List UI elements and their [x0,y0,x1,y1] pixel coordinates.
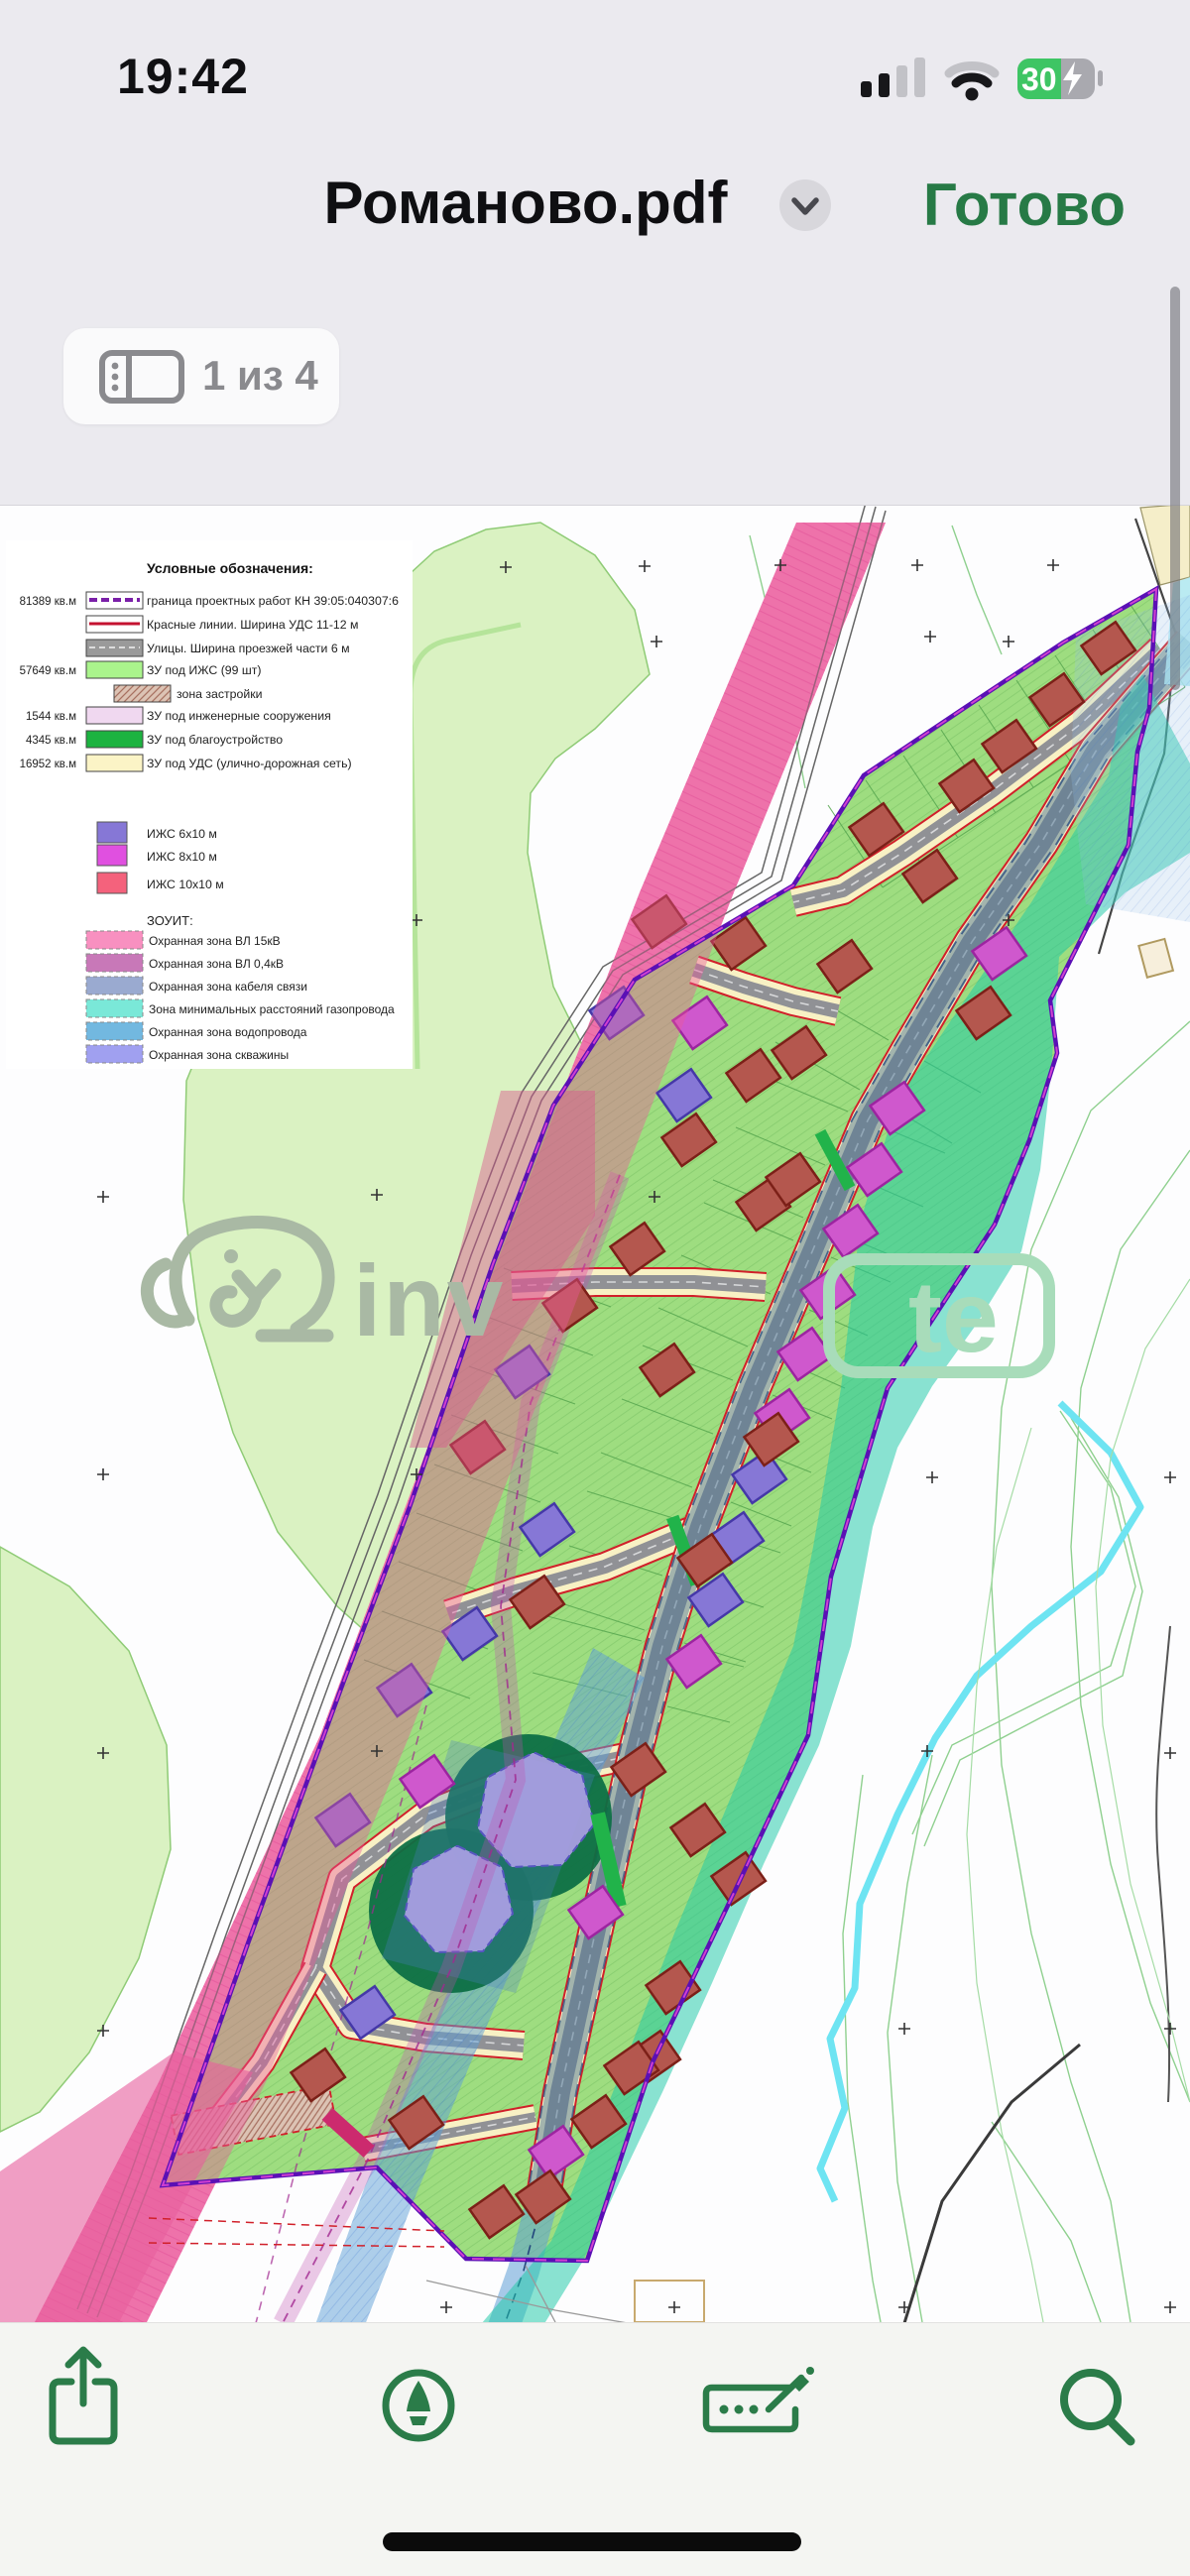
svg-text:Охранная зона скважины: Охранная зона скважины [149,1048,289,1062]
svg-text:ИЖС 8х10 м: ИЖС 8х10 м [147,850,217,864]
svg-text:ЗУ под УДС (улично-дорожная се: ЗУ под УДС (улично-дорожная сеть) [147,757,352,770]
svg-text:ЗУ под благоустройство: ЗУ под благоустройство [147,733,283,747]
svg-text:Охранная зона водопровода: Охранная зона водопровода [149,1025,307,1039]
svg-text:Охранная зона кабеля связи: Охранная зона кабеля связи [149,980,307,994]
svg-text:ЗУ под ИЖС (99 шт): ЗУ под ИЖС (99 шт) [147,663,261,677]
svg-text:57649 кв.м: 57649 кв.м [20,665,77,677]
svg-text:4345 кв.м: 4345 кв.м [26,735,76,747]
svg-text:Условные обозначения:: Условные обозначения: [147,560,313,576]
svg-text:ИЖС 10х10 м: ИЖС 10х10 м [147,878,224,891]
svg-text:Улицы. Ширина проезжей части 6: Улицы. Ширина проезжей части 6 м [147,642,350,655]
svg-text:ЗУ под инженерные сооружения: ЗУ под инженерные сооружения [147,709,331,723]
svg-text:ИЖС 6х10 м: ИЖС 6х10 м [147,827,217,841]
svg-text:граница проектных работ КН 39:: граница проектных работ КН 39:05:040307:… [147,594,399,608]
svg-text:te: te [908,1260,999,1373]
svg-text:inv: inv [353,1244,505,1357]
svg-text:16952 кв.м: 16952 кв.м [20,759,77,770]
svg-text:зона застройки: зона застройки [177,687,263,701]
svg-text:Охранная зона ВЛ 15кВ: Охранная зона ВЛ 15кВ [149,934,281,948]
svg-text:ЗОУИТ:: ЗОУИТ: [147,913,193,928]
svg-text:30: 30 [1021,61,1057,97]
svg-text:Красные линии. Ширина УДС 11-1: Красные линии. Ширина УДС 11-12 м [147,618,358,632]
svg-text:81389 кв.м: 81389 кв.м [20,596,77,608]
svg-text:Зона минимальных расстояний га: Зона минимальных расстояний газопровода [149,1002,395,1016]
svg-text:Охранная зона ВЛ 0,4кВ: Охранная зона ВЛ 0,4кВ [149,957,284,971]
svg-text:1544 кв.м: 1544 кв.м [26,711,76,723]
